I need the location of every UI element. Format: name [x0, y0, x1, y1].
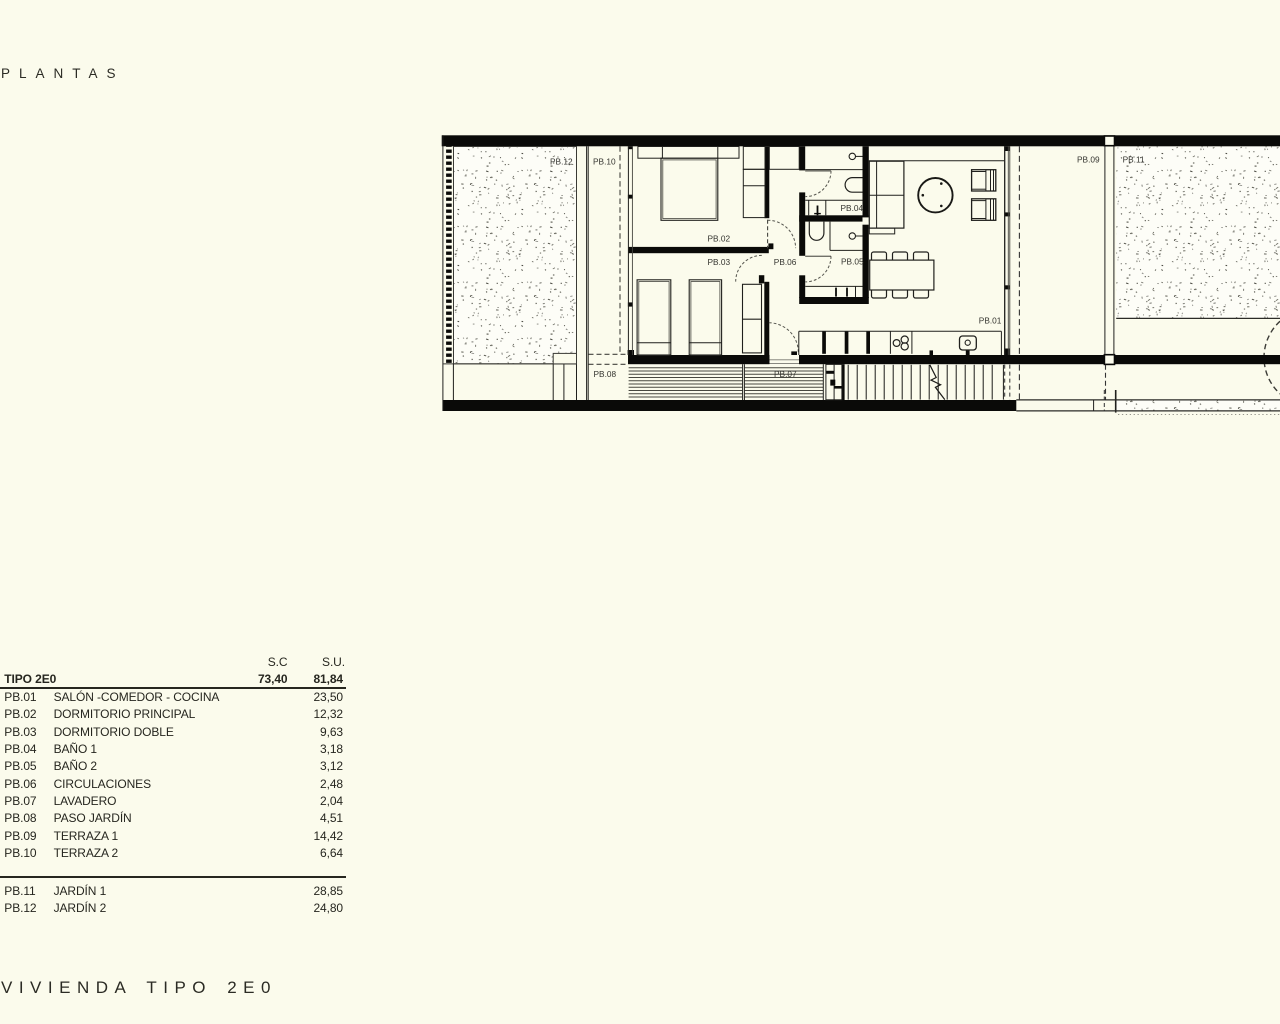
svg-text:PB.10: PB.10 [593, 156, 616, 166]
svg-text:PB.05: PB.05 [841, 257, 864, 267]
svg-text:PB.09: PB.09 [1077, 155, 1100, 165]
svg-text:PB.07: PB.07 [774, 369, 797, 379]
svg-text:PB.12: PB.12 [550, 156, 573, 166]
svg-text:PB.06: PB.06 [774, 257, 797, 267]
svg-text:PB.01: PB.01 [979, 316, 1002, 326]
svg-text:PB.08: PB.08 [594, 369, 617, 379]
svg-text:PB.03: PB.03 [708, 257, 731, 267]
svg-text:PB.11: PB.11 [1123, 155, 1145, 165]
svg-text:PB.04: PB.04 [841, 203, 864, 213]
svg-text:PB.02: PB.02 [708, 234, 731, 244]
